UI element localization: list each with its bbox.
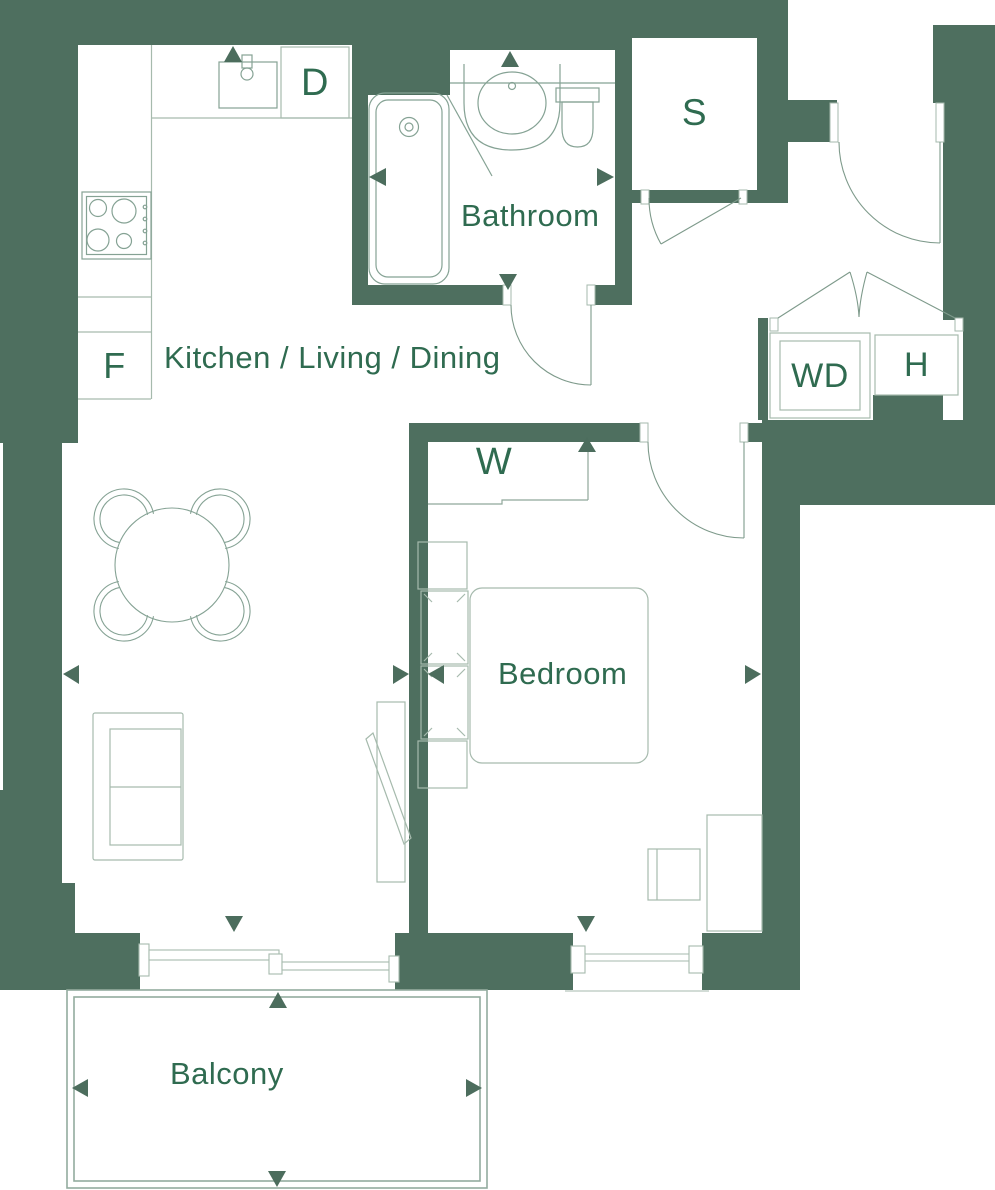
slider-frame [389,956,399,982]
door-frame [936,103,944,142]
arrow-left-icon [369,168,386,186]
wall-segment [352,0,450,95]
pillow [421,666,468,739]
window-frame [689,946,703,973]
arrow-left-icon [63,665,79,684]
closet-doors [778,272,955,318]
slider-frame [139,944,149,976]
basin [450,64,615,150]
arrow-up-icon [501,51,519,67]
arrow-down-icon [577,916,595,932]
store-label: S [632,88,757,136]
hob-knob [143,229,147,233]
door-frame [640,423,648,442]
wall-segment [395,933,573,990]
sink-bowl [219,62,277,108]
bathtub-inner [376,100,442,277]
basin-bowl [478,72,546,134]
sink-tap-head [241,68,253,80]
arrow-up-icon [224,46,242,62]
arrow-down-icon [225,916,243,932]
wall-segment [0,790,62,933]
burner [87,229,109,251]
wall-segment [873,395,943,420]
wall-segment [3,443,62,790]
door-frame [641,190,649,204]
tv-stand [377,702,405,882]
wall-segment [758,318,768,420]
wall-segment [0,933,140,990]
arrow-right-icon [745,665,761,684]
dining-table [115,508,229,622]
bathtub-outer [369,93,449,284]
hob-knob [143,241,147,245]
dining-chair [94,489,154,549]
arrow-down-icon [268,1171,286,1187]
wall-segment [632,0,757,38]
wall-segment [594,285,632,305]
toilet [556,88,599,147]
bedroom-door [648,442,744,538]
tv-unit [366,702,411,882]
wall-segment [352,285,503,305]
room-label-balcony: Balcony [170,1058,284,1089]
store-door [649,198,741,244]
door-frame [587,285,595,305]
washer-dryer-label: WD [770,333,870,418]
door-frame [830,103,838,142]
wall-segment [757,0,788,203]
wall-segment [943,95,995,320]
shower-screen [447,95,492,176]
hob-inner [87,197,147,255]
pillow-ticks [424,594,465,661]
arrow-up-icon [269,992,287,1008]
bathroom-door [511,305,591,385]
slider-joint [269,954,282,974]
bedroom-window [565,946,709,991]
arrow-right-icon [393,665,409,684]
balcony-sliding-door [139,944,399,982]
bathtub-drain [405,123,413,131]
door-frame [740,423,748,442]
dishwasher-label: D [281,47,349,118]
door-frame [955,318,963,331]
wall-segment [409,423,642,442]
entry-door [839,142,940,243]
pillow-ticks [424,669,465,736]
hob [82,192,151,259]
room-label-kitchen-living-dining: Kitchen / Living / Dining [164,342,500,373]
wall-segment [352,95,368,290]
toilet-bowl [562,102,593,147]
wall-segment [450,0,615,50]
wall-segment [632,190,757,203]
chest-of-drawers [707,815,762,931]
door-frame [739,190,747,204]
kitchen-sink [219,55,277,108]
bathtub-drain [400,118,419,137]
slider-panel [149,950,279,960]
side-unit [648,849,700,900]
wall-segment [0,0,78,443]
tv-screen [366,733,411,844]
hob-knob [143,217,147,221]
fridge-label: F [78,332,151,399]
dining-chair [191,582,251,642]
floor-plan: Kitchen / Living / Dining Bathroom Bedro… [0,0,995,1190]
room-label-bedroom: Bedroom [498,658,627,689]
floor-plan-drawing [0,0,995,1190]
dining-chair [94,582,154,642]
wall-segment [702,933,800,990]
burner [112,199,136,223]
window-frame [571,946,585,973]
toilet-cistern [556,88,599,102]
arrow-left-icon [428,665,444,684]
wall-segment [62,883,75,933]
burner [117,234,132,249]
wall-segment [747,423,762,442]
window-glazing [565,954,709,991]
dining-table-set [94,489,250,641]
utility-label: H [875,335,958,395]
sofa [93,713,183,860]
wardrobe-label: W [472,444,516,480]
dining-chair [191,489,251,549]
hob-knob [143,205,147,209]
wall-segment [762,420,995,505]
burner [90,200,107,217]
wall-segment [409,442,428,933]
slider-panel [282,962,390,970]
bathtub [369,93,492,284]
wall-segment [762,505,800,933]
pillow [421,591,468,664]
room-label-bathroom: Bathroom [461,200,599,231]
wall-segment [615,0,632,290]
wall-segment [0,0,352,45]
wall-segment [933,25,995,103]
arrow-right-icon [597,168,614,186]
door-frame [770,318,778,331]
